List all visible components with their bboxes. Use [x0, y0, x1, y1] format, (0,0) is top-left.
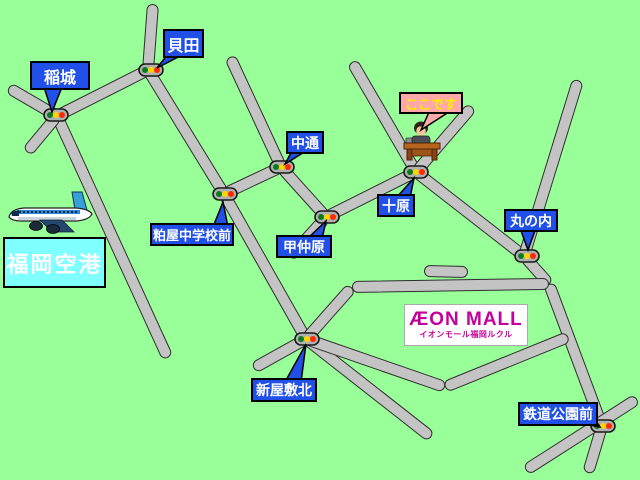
traffic-light-shinyashiki [294, 332, 320, 351]
traffic-light-nakadori [269, 160, 295, 179]
aeon-mall-logo: ÆON MALL [409, 310, 523, 330]
junction-label-kasuya-chugakko-mae: 粕屋中学校前 [150, 223, 234, 246]
airplane-icon [6, 190, 96, 243]
traffic-light-inagi [43, 108, 69, 127]
junction-label-konakabaru: 甲仲原 [276, 235, 332, 258]
aeon-mall-subtitle: イオンモール福岡ルクル [419, 330, 512, 340]
junction-label-shinyashiki-kita: 新屋敷北 [251, 378, 317, 402]
airport-label: 福岡空港 [3, 237, 106, 288]
junction-label-marunouchi: 丸の内 [504, 209, 558, 232]
here-callout: ここです [399, 92, 463, 114]
road-segment-kasuya-shinyashiki [219, 191, 312, 342]
junction-label-kaida: 貝田 [163, 29, 204, 58]
junction-label-tetsudo-koen-mae: 鉄道公園前 [518, 402, 598, 426]
traffic-light-kasuya [212, 187, 238, 206]
junction-label-nakadori: 中通 [286, 131, 324, 154]
traffic-light-marunouchi [514, 249, 540, 268]
road-segment-top-stub [142, 4, 159, 71]
junction-label-tobaru: 十原 [377, 194, 415, 217]
road-segment-top-nakadori [225, 54, 287, 169]
road-segment-small-stub [424, 265, 468, 278]
road-segment-kaida-kasuya [143, 67, 229, 197]
traffic-light-konakabaru [314, 210, 340, 229]
aeon-mall-sign: ÆON MALL イオンモール福岡ルクル [404, 304, 528, 346]
route-map: 稲城 貝田 中通 粕屋中学校前 甲仲原 十原 丸の内 新屋敷北 鉄道公園前 ここ… [0, 0, 640, 480]
desk-person-icon [402, 120, 442, 167]
traffic-light-tobaru [403, 165, 429, 184]
junction-label-inagi: 稲城 [30, 61, 90, 90]
road-segment-horizontal-mid [352, 278, 549, 293]
traffic-light-kaida [138, 63, 164, 82]
